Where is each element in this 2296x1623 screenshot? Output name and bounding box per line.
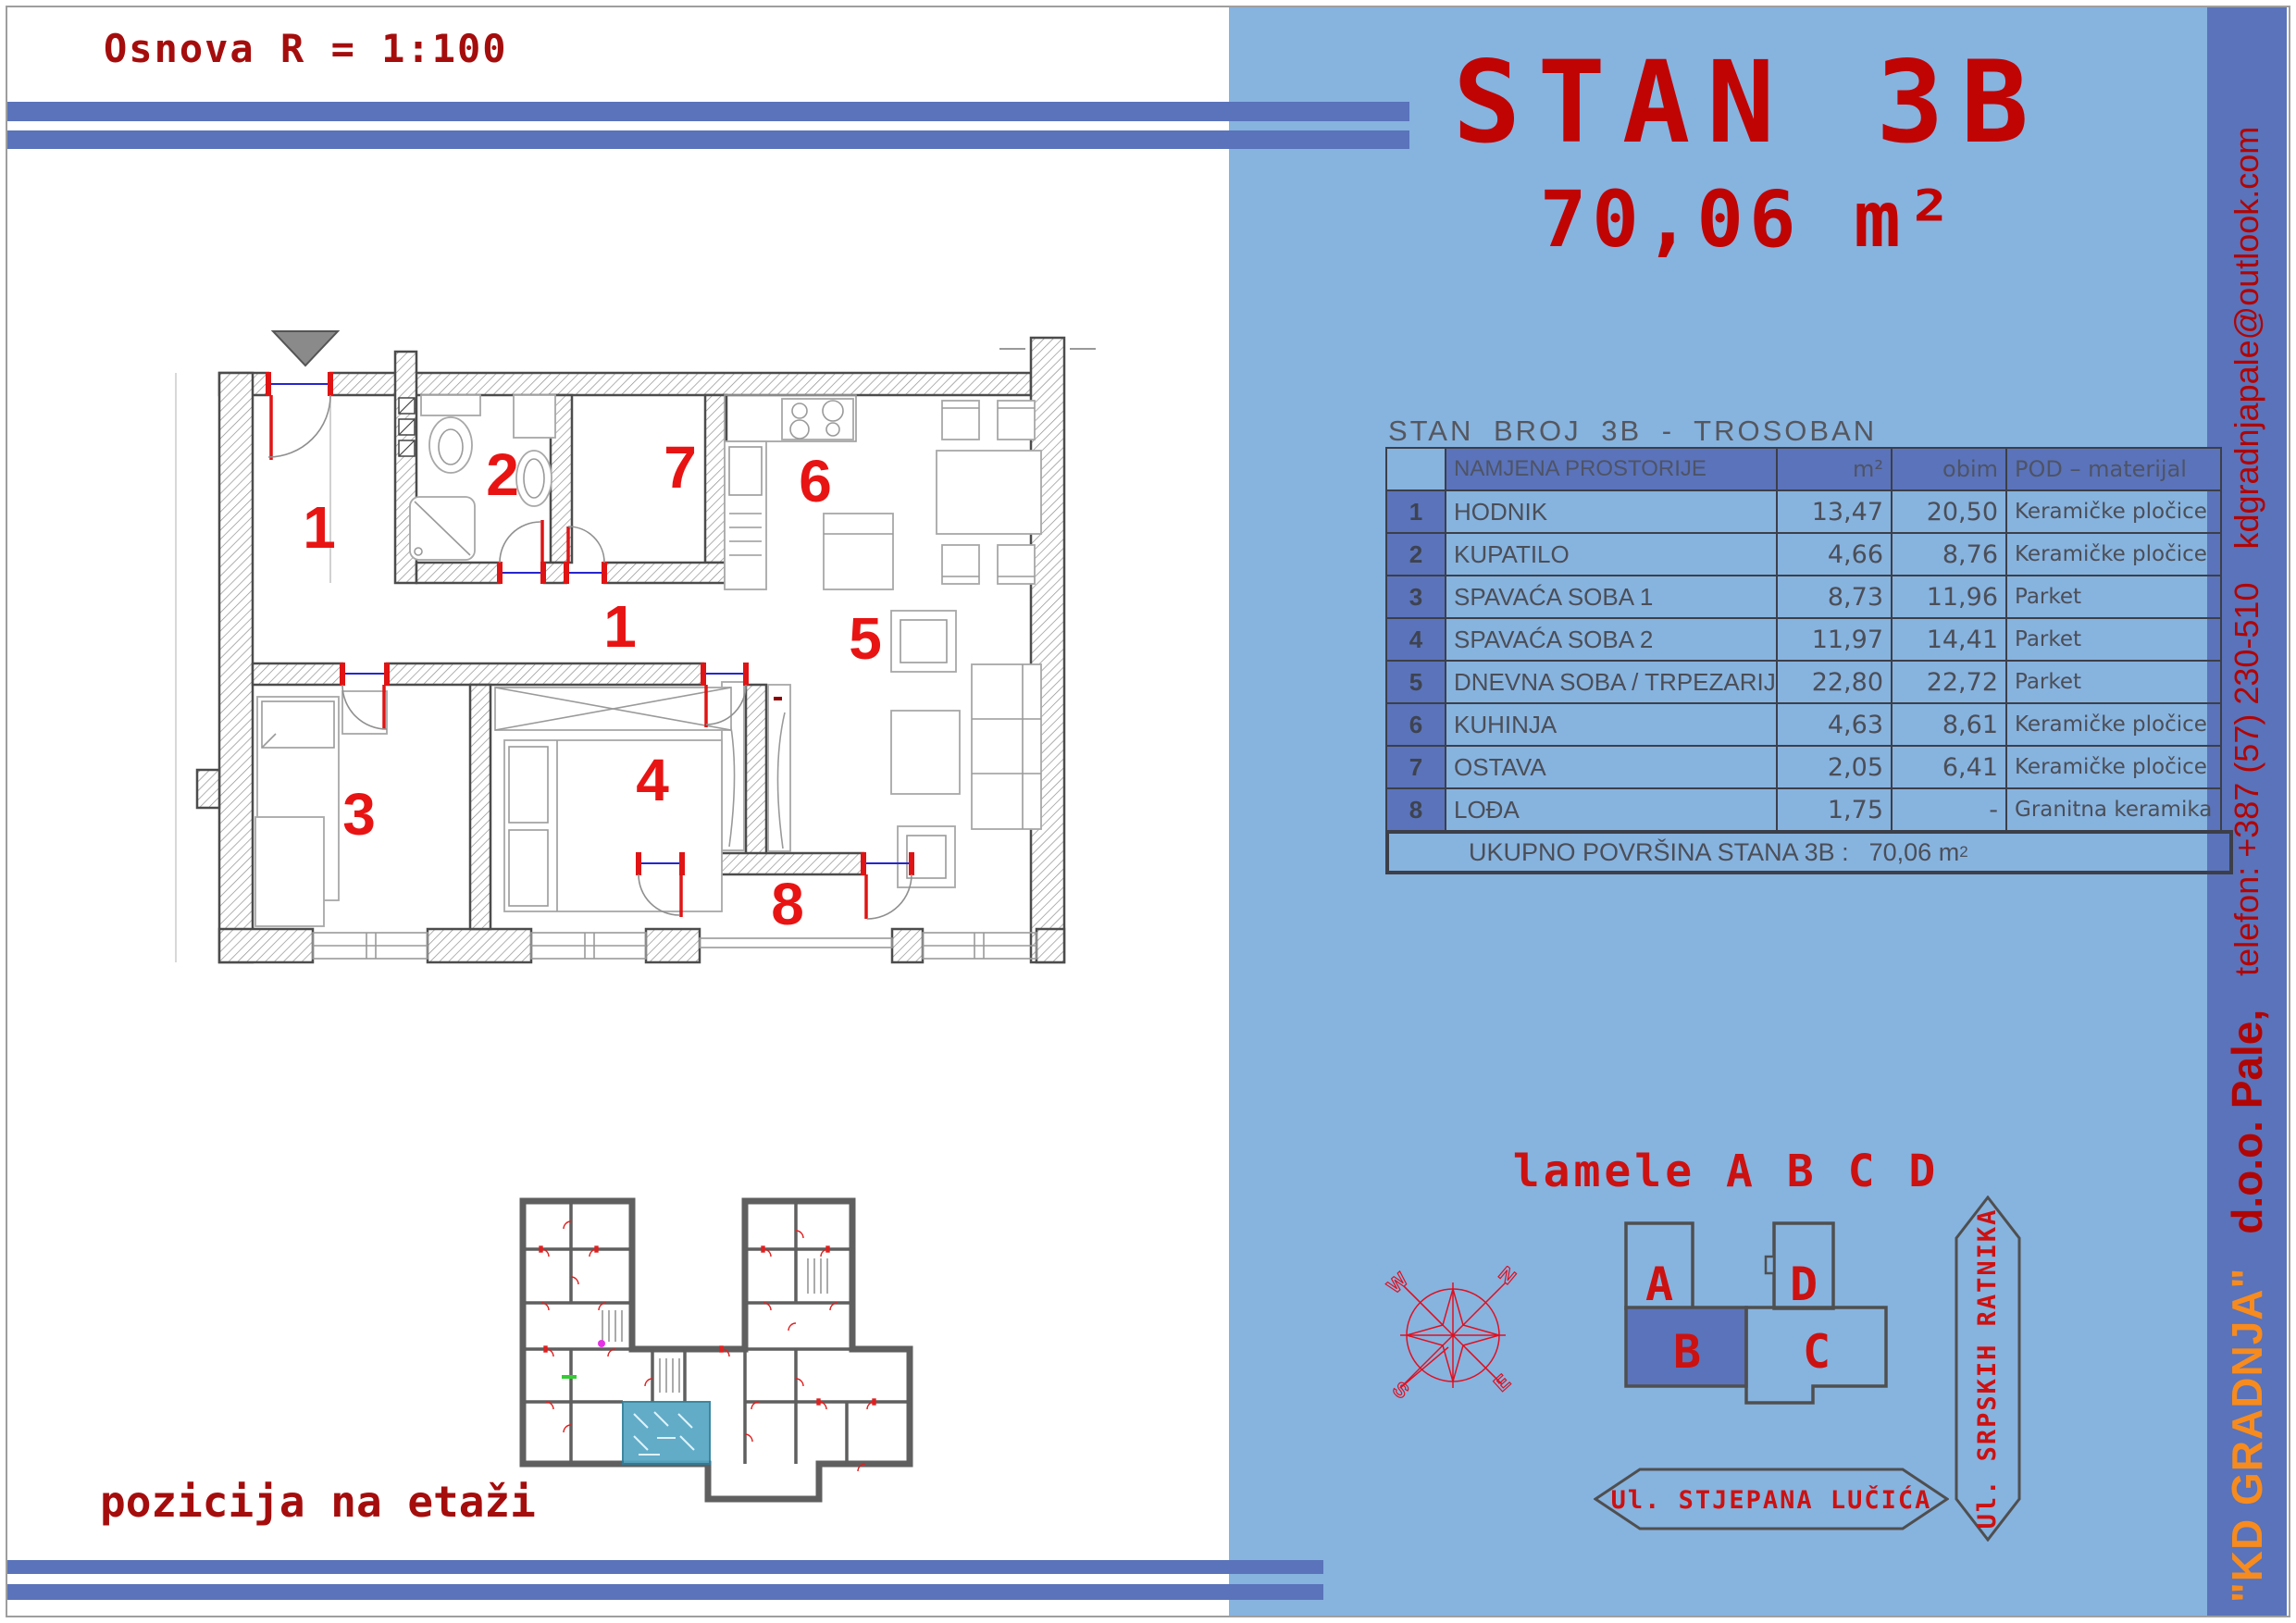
bottom-bar-2 (7, 1584, 1323, 1600)
apartment-area: 70,06 m² (1351, 174, 2147, 265)
bottom-bar-1 (7, 1560, 1323, 1574)
rooms-table: NAMJENA PROSTORIJE m² obim POD – materij… (1385, 447, 2153, 832)
table-title: STAN BROJ 3B - TROSOBAN (1388, 415, 1877, 448)
compass-w: W (1384, 1268, 1412, 1298)
position-title: pozicija na etaži (100, 1477, 536, 1527)
table-row: 7 OSTAVA 2,05 6,41 Keramičke pločice (1386, 746, 2221, 788)
company-phone: telefon: +387 (57) 230-510 (2228, 583, 2266, 976)
block-a-label: A (1645, 1258, 1673, 1311)
svg-text:3: 3 (342, 781, 376, 848)
total-value: 70,06 m (1869, 838, 1960, 867)
vent-shafts (399, 398, 415, 456)
bedroom2-furniture (495, 688, 731, 911)
mini-plan-stairs (602, 1258, 827, 1393)
street-sign-vertical: Ul. SRPSKIH RATNIKA (1955, 1196, 2021, 1542)
svg-text:2: 2 (486, 441, 519, 508)
block-c-label: C (1803, 1325, 1831, 1379)
street-sign-horizontal: Ul. STJEPANA LUČIĆA (1594, 1468, 1949, 1530)
svg-text:1: 1 (303, 494, 336, 561)
table-row: 1 HODNIK 13,47 20,50 Keramičke pločice (1386, 490, 2221, 533)
table-row: 5 DNEVNA SOBA / TRPEZARIJA 22,80 22,72 P… (1386, 661, 2221, 703)
building-blocks-diagram: A D B C (1592, 1203, 1906, 1416)
company-suffix: d.o.o. Pale, (2222, 1010, 2272, 1234)
svg-text:7: 7 (664, 434, 697, 501)
living-room-furniture (891, 611, 1041, 887)
total-label: UKUPNO POVRŠINA STANA 3B : (1469, 838, 1849, 867)
table-header-row: NAMJENA PROSTORIJE m² obim POD – materij… (1386, 448, 2221, 490)
header-empty (1386, 448, 1446, 490)
svg-text:8: 8 (771, 871, 804, 937)
apartment-title: STAN 3B (1351, 37, 2147, 168)
entrance-marker (273, 331, 338, 365)
top-bar-1 (7, 102, 1409, 121)
table-row: 2 KUPATILO 4,66 8,76 Keramičke pločice (1386, 533, 2221, 576)
block-b-label: B (1673, 1325, 1701, 1379)
compass-e: E (1489, 1369, 1515, 1395)
compass-s: S (1388, 1377, 1413, 1404)
svg-text:1: 1 (603, 593, 637, 660)
mini-plan-marker-magenta (598, 1340, 605, 1347)
header-area: m² (1777, 448, 1892, 490)
highlighted-apartment-3b (623, 1402, 710, 1464)
street-name-vertical: Ul. SRPSKIH RATNIKA (1973, 1208, 2002, 1530)
street-name-horizontal: Ul. STJEPANA LUČIĆA (1611, 1485, 1932, 1515)
scale-title: Osnova R = 1:100 (104, 26, 508, 71)
compass-n: N (1495, 1266, 1520, 1289)
header-floor: POD – materijal (2006, 448, 2221, 490)
table-row: 8 LOĐA 1,75 - Granitna keramika (1386, 788, 2221, 831)
main-floor-plan: 1 2 7 6 1 5 3 4 8 (139, 208, 1101, 1022)
top-bar-2 (7, 130, 1409, 149)
company-email: kdgradnjapale@outlook.com (2228, 127, 2266, 550)
floor-plan-sheet: "KD GRADNJA" d.o.o. Pale, telefon: +387 … (0, 0, 2296, 1623)
svg-text:5: 5 (849, 605, 882, 672)
bathroom-fixtures (410, 395, 555, 560)
table-row: 4 SPAVAĆA SOBA 2 11,97 14,41 Parket (1386, 618, 2221, 661)
compass-rose: N W E S (1384, 1266, 1522, 1405)
svg-text:4: 4 (636, 747, 669, 813)
header-name: NAMJENA PROSTORIJE (1446, 448, 1777, 490)
table-row: 6 KUHINJA 4,63 8,61 Keramičke pločice (1386, 703, 2221, 746)
floor-position-plan (514, 1194, 921, 1504)
company-name: "KD GRADNJA" (2222, 1268, 2272, 1603)
table-total-row: UKUPNO POVRŠINA STANA 3B : 70,06 m2 (1385, 830, 2233, 874)
table-row: 3 SPAVAĆA SOBA 1 8,73 11,96 Parket (1386, 576, 2221, 618)
dining-set (937, 401, 1041, 584)
block-d-label: D (1790, 1258, 1818, 1311)
lamele-title: lamele A B C D (1351, 1146, 2101, 1197)
svg-text:6: 6 (799, 448, 832, 514)
header-perimeter: obim (1892, 448, 2006, 490)
